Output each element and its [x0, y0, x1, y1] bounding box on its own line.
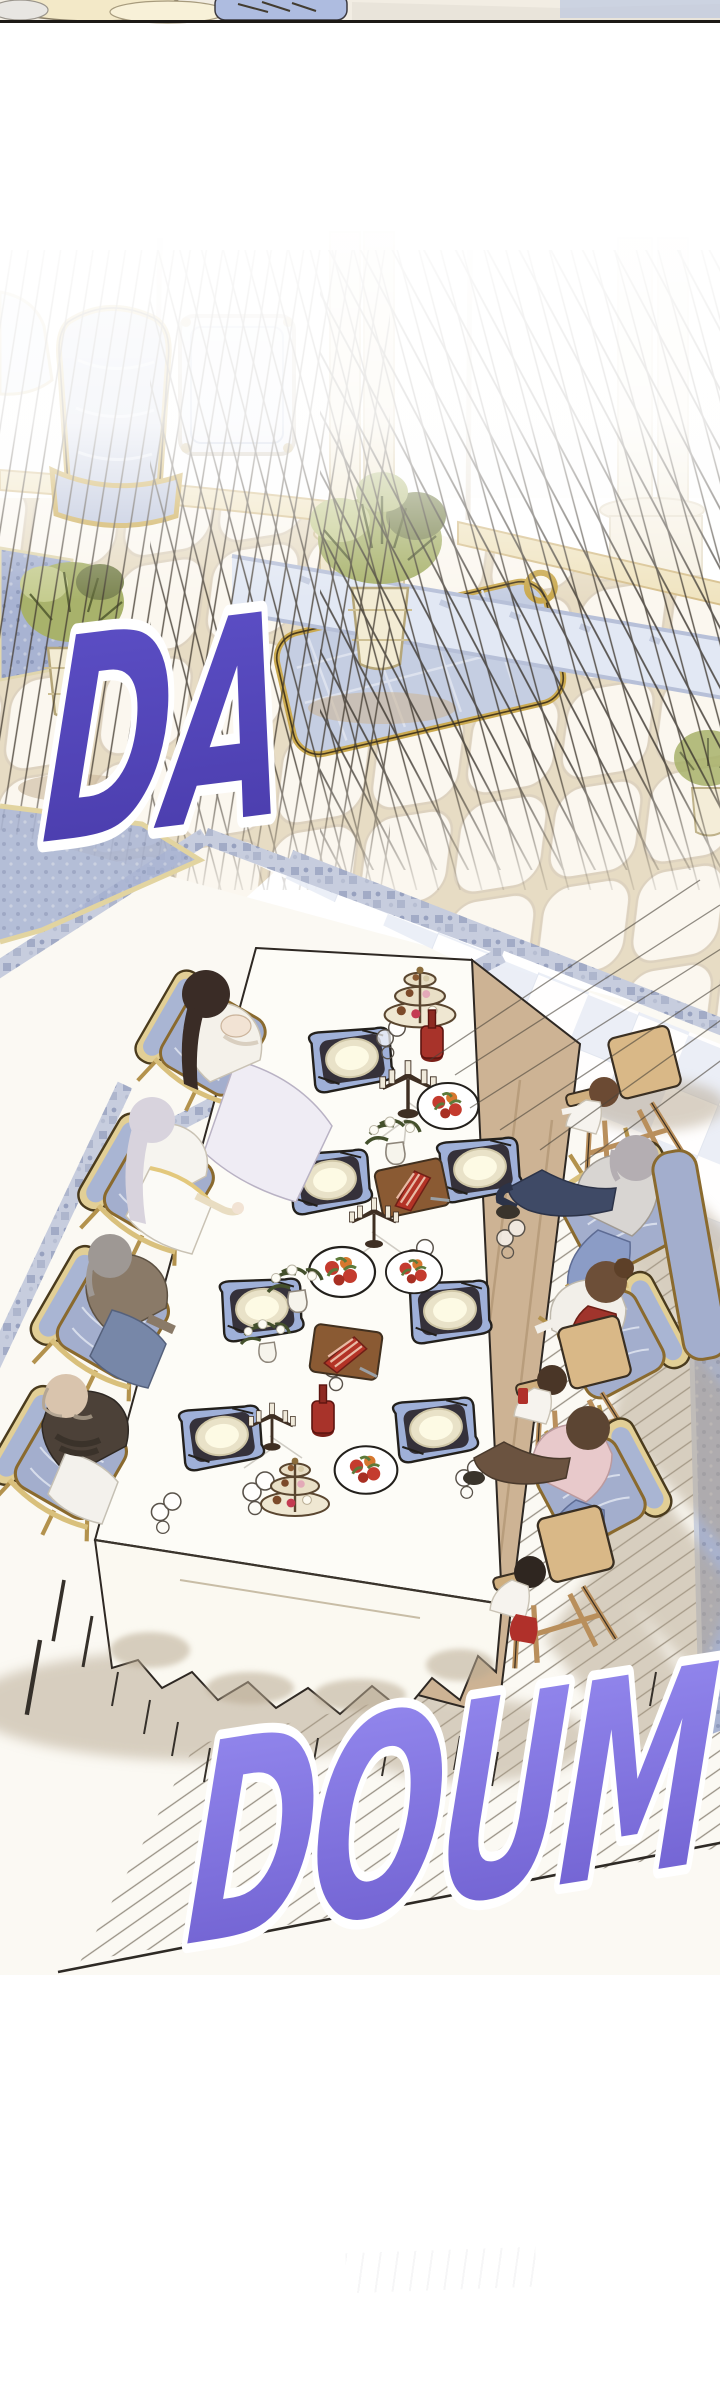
previous-panel-sliver [0, 0, 720, 23]
top-white-fade [0, 150, 720, 610]
faint-watermark [345, 2247, 536, 2294]
sfx-da: DA [37, 552, 293, 909]
sfx-da-text: DA [37, 552, 293, 909]
comic-panel-page: DA DOUM [0, 0, 720, 2400]
panel-artwork: DA DOUM [0, 0, 720, 2400]
